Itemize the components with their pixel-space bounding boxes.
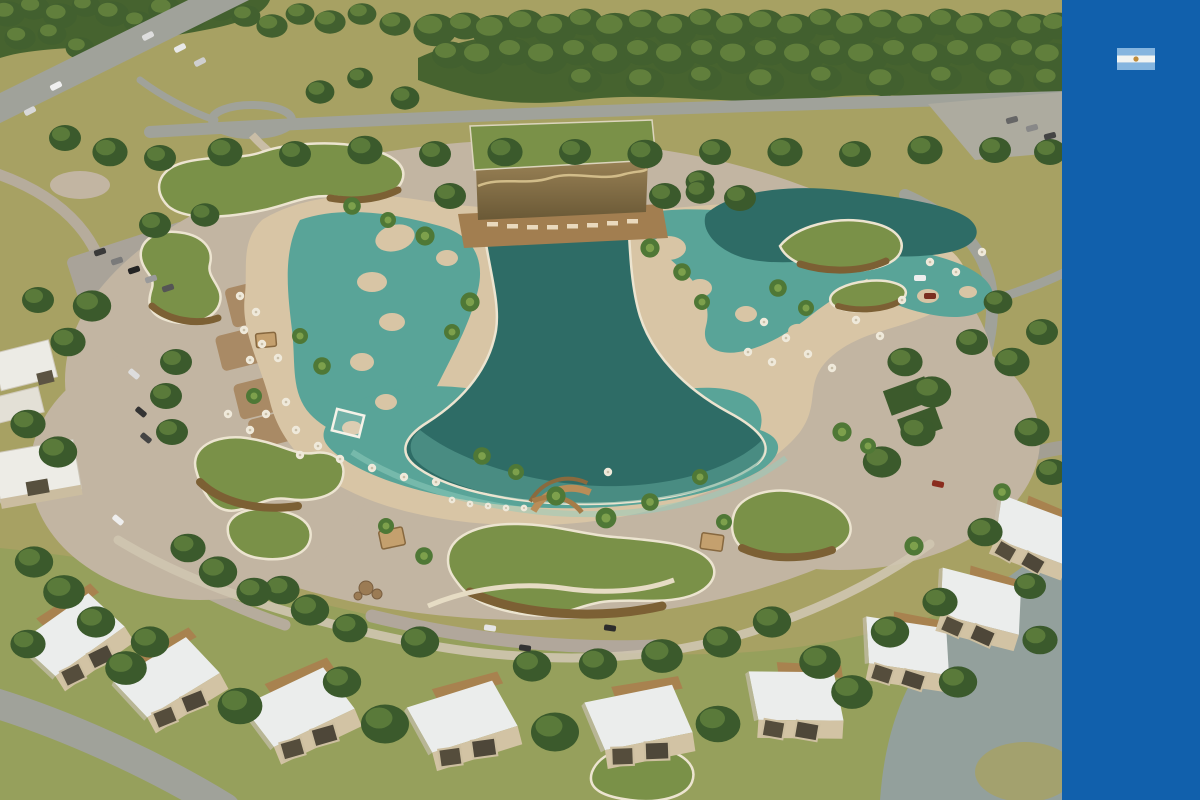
surf-lodge-building <box>458 120 668 248</box>
right-sidebar <box>1062 0 1200 800</box>
flag-stripe-bottom <box>1117 63 1155 70</box>
flag-stripe-top <box>1117 48 1155 55</box>
aerial-render <box>0 0 1200 800</box>
road-grass-patch <box>975 742 1075 800</box>
flag-sun <box>1133 56 1138 61</box>
argentina-flag-icon <box>1117 48 1155 70</box>
screenshot-stage <box>0 0 1200 800</box>
pavilion-west-lower-annex <box>228 509 311 559</box>
